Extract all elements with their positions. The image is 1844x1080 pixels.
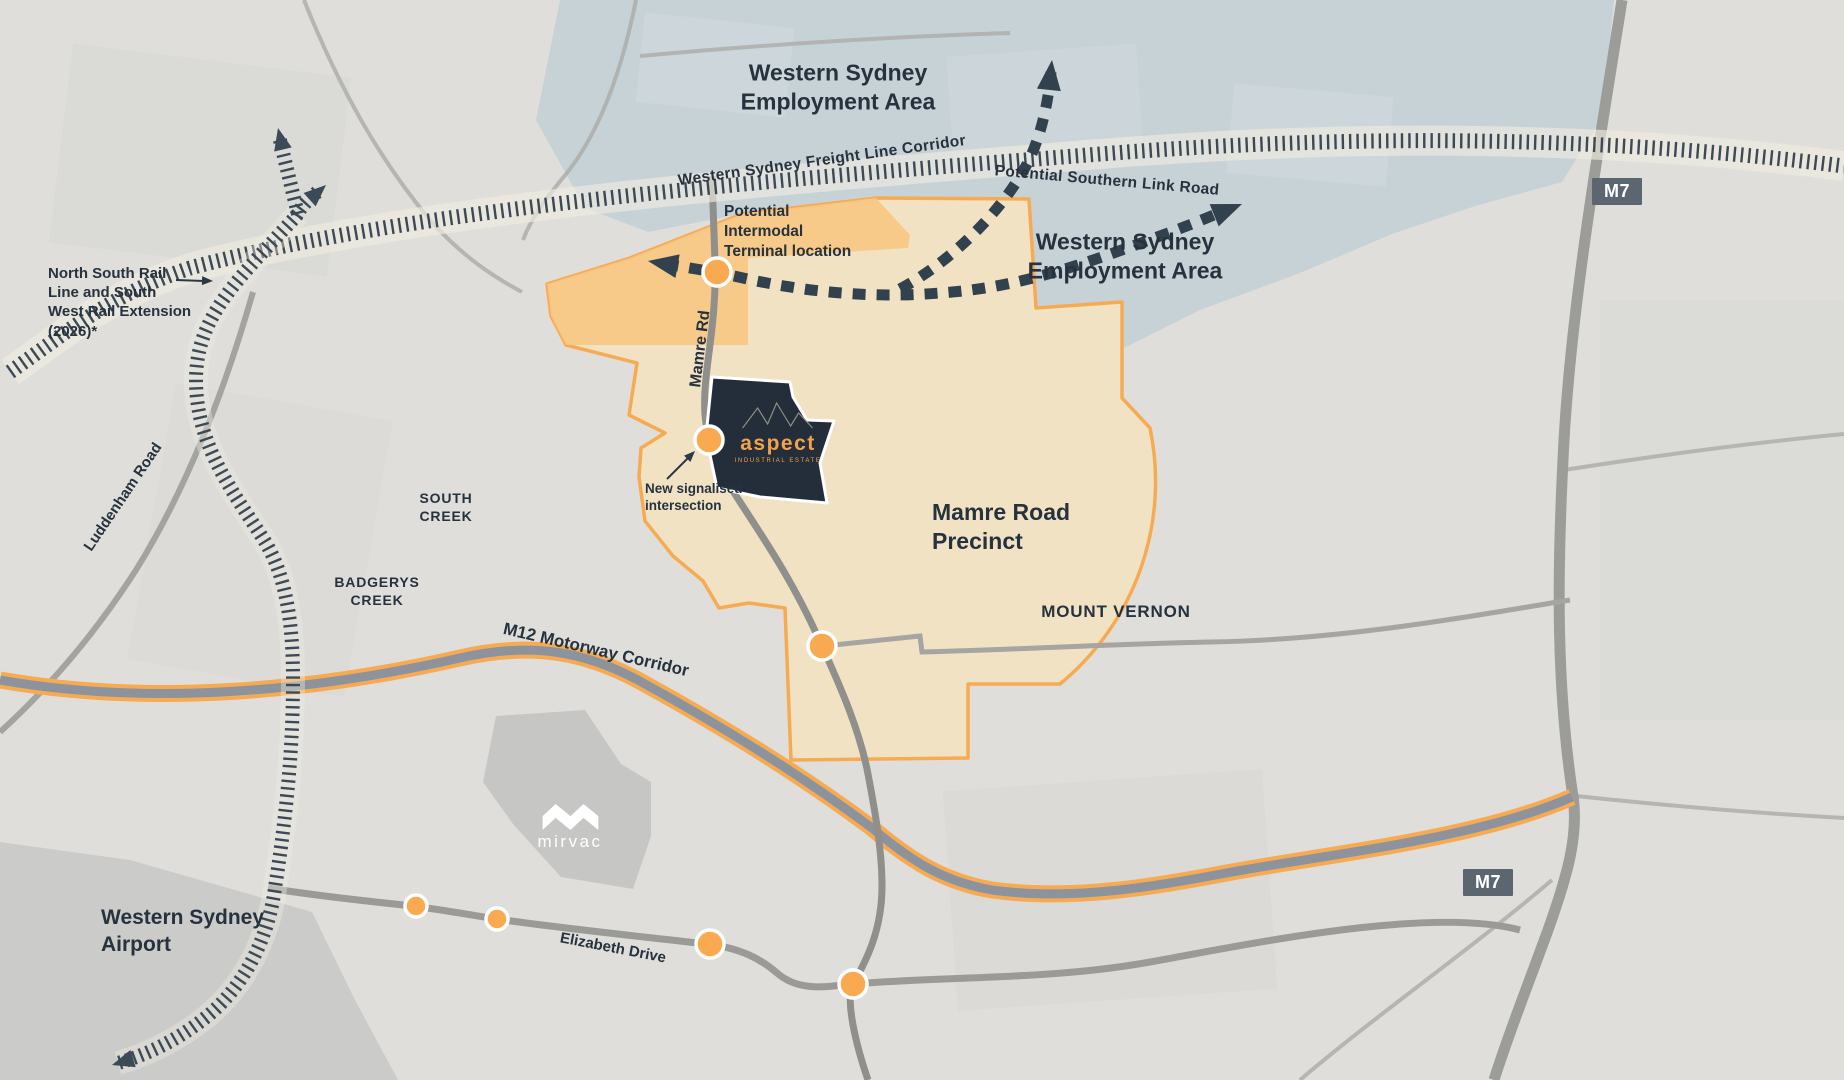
m7-badge-bottom: M7 [1463, 869, 1513, 896]
employment-area-label-top: Western Sydney Employment Area [741, 59, 936, 118]
mount-vernon-label: MOUNT VERNON [1041, 601, 1190, 623]
aspect-logo: aspect INDUSTRIAL ESTATE [735, 400, 822, 464]
elizabeth-dot-2 [486, 908, 508, 930]
mirvac-logo: mirvac [537, 804, 602, 852]
intermodal-dot [703, 258, 731, 286]
south-creek-label: SOUTH CREEK [419, 490, 472, 526]
airport-label: Western Sydney Airport [101, 905, 264, 959]
aspect-wordmark: aspect [740, 432, 816, 456]
mirvac-wordmark: mirvac [537, 832, 602, 852]
aspect-mark-icon [741, 400, 815, 430]
mirvac-mark-icon [541, 804, 599, 830]
aspect-tagline: INDUSTRIAL ESTATE [735, 458, 822, 464]
badgerys-creek-label: BADGERYS CREEK [334, 574, 419, 610]
elizabeth-dot-3 [696, 930, 724, 958]
map-canvas [0, 0, 1844, 1080]
precinct-label: Mamre Road Precinct [932, 498, 1070, 557]
location-map: Western Sydney Employment Area Western S… [0, 0, 1844, 1080]
elizabeth-mamre-dot [839, 970, 867, 998]
signalised-intersection-dot [695, 426, 723, 454]
north-south-rail-label: North South Rail Line and South West Rai… [48, 264, 191, 341]
new-signalised-label: New signalised intersection [645, 480, 743, 515]
intermodal-label: Potential Intermodal Terminal location [724, 202, 851, 261]
employment-area-label-right: Western Sydney Employment Area [1028, 228, 1223, 287]
mamre-south-dot [808, 632, 836, 660]
elizabeth-dot-1 [405, 895, 427, 917]
m7-badge-top: M7 [1592, 178, 1642, 205]
